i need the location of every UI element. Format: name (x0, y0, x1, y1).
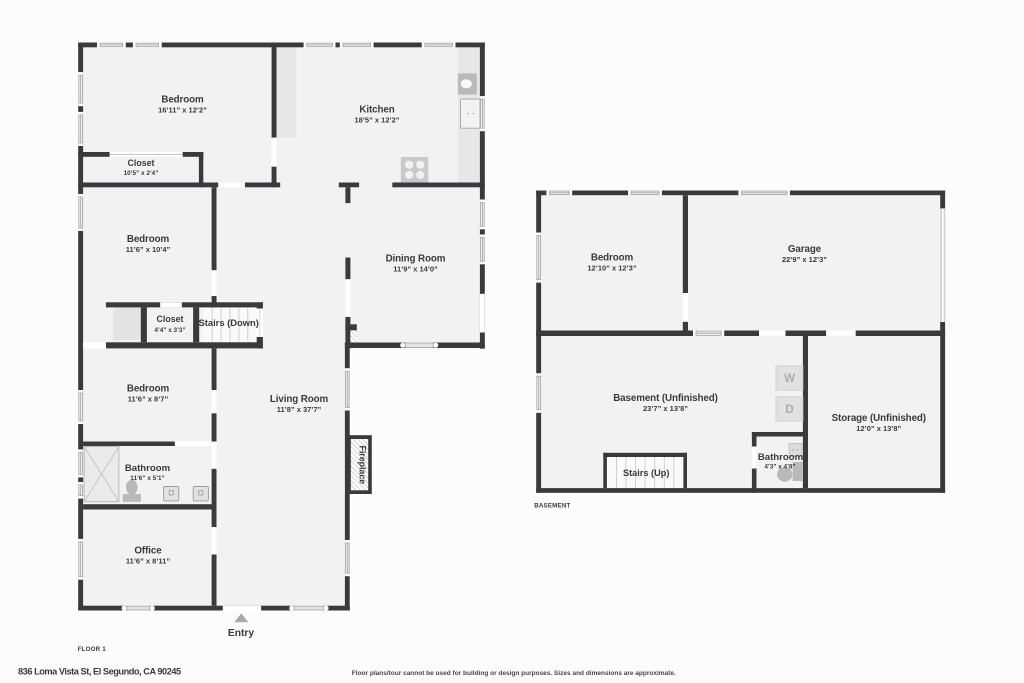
svg-text:12’10” x 12’3”: 12’10” x 12’3” (587, 264, 636, 273)
svg-text:D: D (785, 404, 793, 416)
svg-text:Bedroom: Bedroom (127, 234, 170, 245)
svg-text:Bathroom: Bathroom (758, 452, 803, 463)
svg-text:FLOOR 1: FLOOR 1 (78, 646, 107, 653)
svg-text:22’9” x 12’3”: 22’9” x 12’3” (782, 255, 827, 264)
svg-text:Office: Office (134, 546, 162, 557)
svg-text:Bedroom: Bedroom (591, 253, 634, 264)
svg-text:BASEMENT: BASEMENT (534, 502, 570, 509)
svg-text:12’0” x 13’8”: 12’0” x 13’8” (856, 424, 901, 433)
svg-text:W: W (784, 373, 795, 385)
svg-text:Basement (Unfinished): Basement (Unfinished) (613, 393, 718, 404)
svg-text:Fireplace: Fireplace (358, 445, 368, 484)
svg-text:4’3” x 4’8”: 4’3” x 4’8” (764, 464, 795, 471)
svg-text:11’6” x 8’11”: 11’6” x 8’11” (126, 557, 170, 566)
svg-text:Closet: Closet (157, 314, 184, 324)
svg-text:Entry: Entry (228, 628, 255, 639)
svg-text:Dining Room: Dining Room (386, 254, 446, 265)
svg-text:Bedroom: Bedroom (127, 384, 170, 395)
svg-text:11’8” x 37’7”: 11’8” x 37’7” (277, 405, 322, 414)
svg-text:11’9” x 14’0”: 11’9” x 14’0” (393, 265, 438, 274)
svg-text:Bathroom: Bathroom (125, 463, 170, 474)
svg-text:11’6” x 10’4”: 11’6” x 10’4” (126, 245, 171, 254)
svg-text:23’7” x 13’8”: 23’7” x 13’8” (643, 404, 688, 413)
svg-text:Living Room: Living Room (270, 394, 329, 405)
svg-text:Bedroom: Bedroom (161, 95, 204, 106)
svg-text:10’5” x 2’4”: 10’5” x 2’4” (124, 170, 159, 177)
svg-text:18’5” x 12’2”: 18’5” x 12’2” (354, 116, 399, 125)
svg-text:836 Loma Vista St, El Segundo,: 836 Loma Vista St, El Segundo, CA 90245 (18, 667, 181, 677)
svg-text:11’6” x 8’7”: 11’6” x 8’7” (128, 395, 169, 404)
svg-text:Floor plans/tour cannot be use: Floor plans/tour cannot be used for buil… (352, 670, 676, 677)
svg-text:11’6” x 5’1”: 11’6” x 5’1” (130, 475, 164, 482)
svg-text:16’11” x 12’2”: 16’11” x 12’2” (158, 106, 207, 115)
svg-text:Garage: Garage (788, 244, 822, 255)
svg-text:Storage (Unfinished): Storage (Unfinished) (832, 413, 926, 424)
svg-text:Kitchen: Kitchen (359, 105, 394, 116)
svg-text:Stairs (Down): Stairs (Down) (198, 317, 258, 328)
svg-text:Closet: Closet (128, 158, 155, 168)
svg-text:4’4” x 3’3”: 4’4” x 3’3” (154, 327, 185, 334)
svg-text:Stairs (Up): Stairs (Up) (623, 468, 669, 478)
